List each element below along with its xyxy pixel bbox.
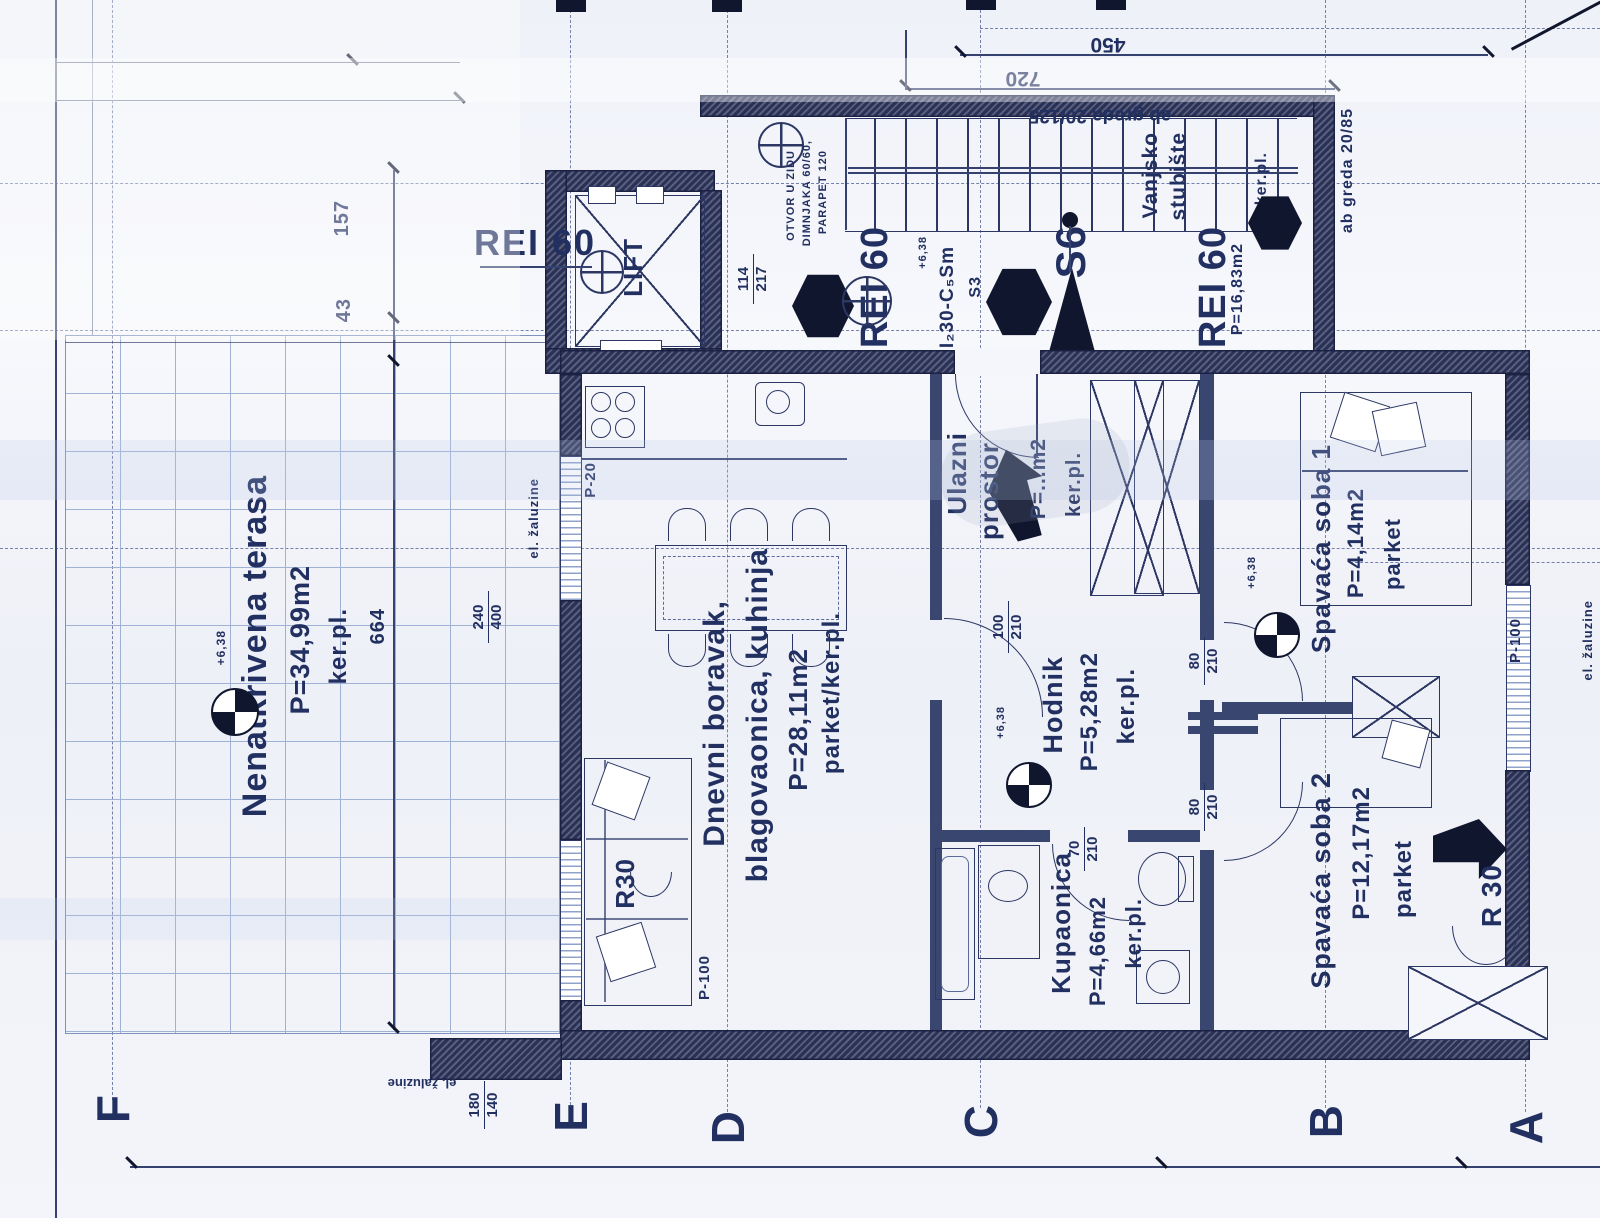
label-s3: S3 [968, 276, 984, 298]
wardrobe-ulaz-b [1134, 380, 1200, 594]
floorplan-sheet: Nenatkrivena terasa P=34,99m2 ker.pl. +6… [0, 0, 1600, 1218]
room-area-living: P=28,11m2 [785, 648, 811, 791]
dim-664: 664 [368, 608, 388, 644]
elevation-value-corridor: +6,38 [918, 236, 929, 269]
note-otvor-line1: OTVOR U ZIDU [786, 150, 797, 241]
dim-line-top2 [57, 100, 460, 101]
fire-door-class: EI₂30-C₅Sm [938, 246, 957, 362]
wall-apartment-right-a [1505, 374, 1530, 585]
elevation-value-terasa: +6,38 [215, 630, 227, 665]
room-area-terasa: P=34,99m2 [287, 565, 314, 714]
stove-burner [615, 418, 635, 438]
axis-label-e: E [548, 1100, 594, 1132]
elevation-marker-soba1 [1254, 612, 1300, 658]
vanity [978, 845, 1040, 959]
note-otvor-line3: PARAPET 120 [818, 150, 829, 234]
dim-43: 43 [334, 298, 354, 322]
dim-tick [346, 53, 359, 66]
dim-door-80-210-a: 80 210 [1187, 637, 1221, 685]
axis-label-a: A [1503, 1110, 1549, 1144]
dim-window-240-400: 240 400 [471, 591, 505, 643]
lift-label: LIFT [620, 238, 646, 297]
washbasin [988, 870, 1028, 902]
note-zaluzine-south: el. žaluzine [382, 1076, 462, 1091]
bathtub-inner [941, 856, 969, 992]
dim-line-bottom [130, 1166, 1600, 1168]
wardrobe-soba2 [1408, 966, 1548, 1040]
frame-line-left [55, 0, 57, 1218]
partition-bedroom-a [1200, 374, 1214, 640]
stairs-landing-edge [845, 118, 847, 230]
entrance-opening [955, 348, 1040, 376]
axis-label-c: C [958, 1104, 1004, 1138]
kitchen-sink-basin [766, 390, 790, 414]
window-living-west [560, 456, 582, 602]
dim-tick [1482, 45, 1495, 58]
room-area-soba1: P=4,14m2 [1345, 488, 1367, 598]
wall-apartment-top-right [1040, 350, 1530, 374]
dim-line-vertical [393, 170, 395, 1030]
elevation-marker-hodnik [1006, 762, 1052, 808]
dim-win-180-140: 180 140 [467, 1081, 501, 1129]
dim-door-100-210: 100 210 [991, 601, 1025, 653]
dim-450: 450 [1076, 32, 1140, 56]
stove-burner [615, 392, 635, 412]
label-p100-living: P-100 [697, 955, 712, 1000]
lift-door-left [588, 186, 616, 204]
room-area-soba2: P=12,17m2 [1350, 786, 1374, 920]
partition-living-ulaz [930, 374, 942, 620]
room-floor-soba1: parket [1382, 518, 1404, 590]
room-area-hodnik: P=5,28m2 [1078, 652, 1102, 771]
label-p20: P-20 [583, 462, 598, 498]
fire-rating-leader [480, 266, 592, 268]
fire-rating-rei60-lift: REI 60 [474, 222, 596, 264]
axis-cut-mark [1096, 0, 1126, 10]
elevation-value-soba1: +6,38 [1247, 556, 1258, 589]
dim-line-top1 [57, 62, 460, 63]
dim-line-450 [960, 54, 1488, 56]
bed-pillow [1372, 402, 1427, 457]
room-label-stubiste-1: Vanjsko [1140, 132, 1161, 218]
wall-apartment-left-b [560, 600, 582, 840]
toilet-tank [1178, 856, 1194, 902]
dim-tick [453, 91, 466, 104]
dim-riser [905, 30, 907, 90]
grid-line-h2 [0, 330, 1600, 331]
dining-chair [730, 508, 768, 541]
washing-machine-drum [1146, 960, 1180, 994]
room-floor-living: parket/ker.pl. [820, 612, 844, 774]
window-living-southwest [560, 840, 582, 1002]
fire-rating-rei60-stubiste: REI 60 [1194, 226, 1232, 348]
room-label-stubiste-2: stubište [1168, 132, 1189, 221]
axis-label-b: B [1303, 1104, 1349, 1138]
axis-cut-letter-b: B [1404, 0, 1452, 16]
kitchen-counter-edge [582, 458, 847, 460]
window-soba1-east [1506, 585, 1531, 772]
room-area-kupaonica: P=4,66m2 [1087, 896, 1109, 1006]
elevation-value-hodnik: +6,38 [996, 706, 1007, 739]
room-floor-hodnik: ker.pl. [1115, 668, 1139, 744]
sofa-cushion-line [586, 918, 688, 920]
stove-burner [591, 418, 611, 438]
room-label-terasa: Nenatkrivena terasa [238, 475, 272, 817]
room-area-stubiste: P=16,83m2 [1230, 243, 1246, 335]
note-otvor-line2: DIMNJAKA 60/60, [802, 140, 813, 246]
niche-bar-b [1188, 726, 1258, 734]
wall-stair-right [1313, 95, 1335, 374]
wall-apartment-top-left [560, 350, 955, 374]
dim-niche-114-217: 114 217 [736, 254, 770, 304]
stove-burner [591, 392, 611, 412]
partition-hodnik-kupaonica-b [1128, 830, 1200, 842]
elevation-marker-terasa [211, 688, 259, 736]
room-label-living-2: blagovaonica, kuhinja [743, 548, 773, 882]
dim-tick [1328, 79, 1341, 92]
axis-label-d: D [705, 1110, 751, 1144]
sofa-cushion-line [586, 838, 688, 840]
room-label-kupaonica: Kupaonica [1048, 852, 1074, 994]
column-marker-landing [758, 122, 804, 168]
lift-door-right [636, 186, 664, 204]
stairs-handrail [848, 167, 1298, 169]
stairs-handrail2 [848, 172, 1298, 174]
note-zaluzine-west: el. žaluzine [527, 478, 540, 559]
column-marker-corridor [842, 276, 892, 326]
room-label-soba2: Spavaća soba 2 [1308, 772, 1335, 989]
note-zaluzine-east: el. žaluzine [1581, 600, 1594, 681]
room-floor-kupaonica: ker.pl. [1123, 898, 1145, 969]
label-s6: S6 [1050, 225, 1092, 278]
room-label-living-1: Dnevni boravak, [700, 600, 730, 847]
dim-157: 157 [332, 200, 352, 236]
dim-door-80-210-b: 80 210 [1187, 783, 1221, 831]
dim-720: 720 [988, 66, 1058, 90]
niche-bar-a [1188, 712, 1258, 720]
note-ab-greda-20-85: ab greda 20/85 [1340, 108, 1356, 233]
fire-rating-r30-soba2: R 30 [1478, 864, 1506, 927]
wall-apartment-left-a [560, 374, 582, 456]
room-floor-terasa: ker.pl. [327, 608, 351, 684]
room-label-hodnik: Hodnik [1040, 656, 1067, 754]
frame-line-left2 [92, 0, 93, 335]
room-label-soba1: Spavaća soba 1 [1308, 444, 1334, 653]
partition-living-hodnik [930, 700, 942, 830]
room-area-ulaz: P=...m2 [1028, 438, 1049, 519]
axis-label-f: F [90, 1094, 136, 1123]
room-floor-soba2: parket [1392, 840, 1416, 918]
axis-cut-mark [966, 0, 996, 10]
room-label-ulaz-2: prostor [976, 442, 1002, 540]
room-label-ulaz-1: Ulazni [944, 432, 970, 515]
partition-hodnik-kupaonica-a [930, 830, 1050, 842]
partition-bedroom-c [1200, 850, 1214, 1030]
terrace-edge [65, 342, 558, 343]
axis-cut-mark [556, 0, 586, 12]
wall-lift-left [545, 170, 567, 374]
dining-chair [792, 508, 830, 541]
wall-lift-top [545, 170, 715, 192]
column-hex-corridor [986, 266, 1052, 338]
scan-artifact [0, 0, 520, 340]
grid-line-h4 [980, 28, 1600, 29]
dining-chair [668, 508, 706, 541]
axis-cut-mark [712, 0, 742, 12]
wall-apartment-bottom [560, 1030, 1530, 1060]
note-ab-greda-20-125: ab greda 20/125 [960, 104, 1240, 126]
dim-tick [954, 45, 967, 58]
room-floor-ulaz: ker.pl. [1064, 452, 1084, 517]
wall-terrace-corner [430, 1038, 562, 1080]
label-p100-soba1: P-100 [1508, 618, 1523, 663]
dim-line-720 [905, 88, 1335, 90]
grid-line-h1 [0, 183, 1600, 184]
section-flag-stem [1069, 226, 1071, 272]
